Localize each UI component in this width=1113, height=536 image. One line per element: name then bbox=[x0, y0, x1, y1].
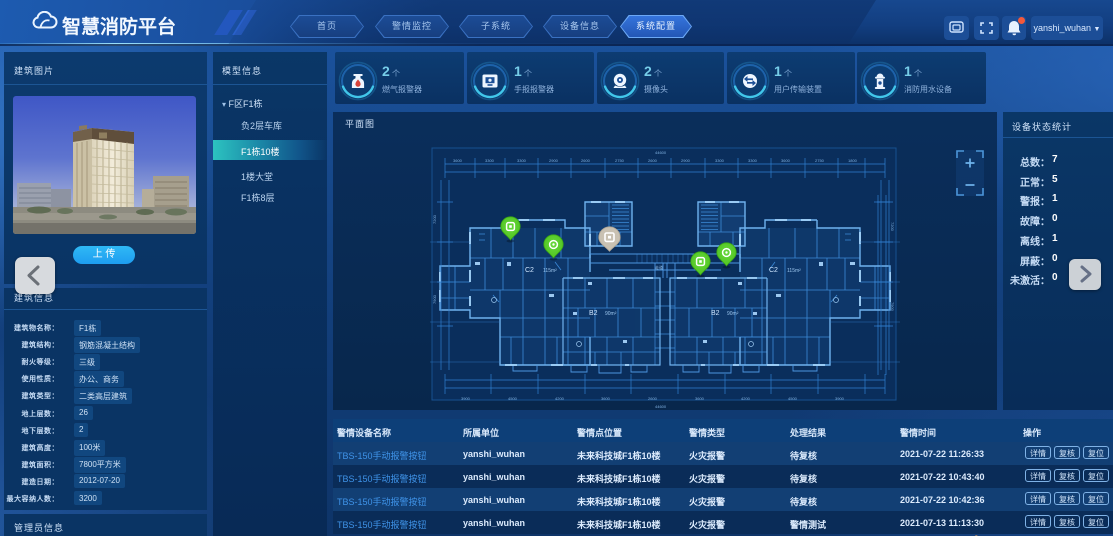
svg-text:3300: 3300 bbox=[485, 158, 495, 163]
svg-text:3600: 3600 bbox=[695, 396, 705, 401]
svg-text:走道: 走道 bbox=[655, 264, 663, 270]
svg-text:4500: 4500 bbox=[788, 396, 798, 401]
svg-text:C2: C2 bbox=[769, 267, 778, 274]
svg-text:3300: 3300 bbox=[748, 158, 758, 163]
svg-text:4200: 4200 bbox=[741, 396, 751, 401]
svg-text:4200: 4200 bbox=[555, 396, 565, 401]
svg-text:B2: B2 bbox=[711, 310, 720, 317]
svg-text:1800: 1800 bbox=[848, 158, 858, 163]
svg-text:2600: 2600 bbox=[648, 396, 658, 401]
svg-text:90m²: 90m² bbox=[727, 311, 739, 317]
svg-text:7900: 7900 bbox=[432, 294, 437, 304]
svg-text:2750: 2750 bbox=[815, 158, 825, 163]
svg-text:2750: 2750 bbox=[615, 158, 625, 163]
svg-text:C2: C2 bbox=[525, 267, 534, 274]
svg-text:3600: 3600 bbox=[453, 158, 463, 163]
svg-text:3900: 3900 bbox=[461, 396, 471, 401]
svg-text:2600: 2600 bbox=[581, 158, 591, 163]
svg-text:2600: 2600 bbox=[648, 158, 658, 163]
svg-text:44600: 44600 bbox=[655, 150, 667, 155]
svg-text:3300: 3300 bbox=[517, 158, 527, 163]
svg-text:4500: 4500 bbox=[508, 396, 518, 401]
svg-text:3600: 3600 bbox=[781, 158, 791, 163]
svg-text:3300: 3300 bbox=[715, 158, 725, 163]
svg-text:2900: 2900 bbox=[681, 158, 691, 163]
svg-text:115m²: 115m² bbox=[787, 268, 801, 274]
svg-text:B2: B2 bbox=[589, 310, 598, 317]
svg-text:44600: 44600 bbox=[655, 404, 667, 409]
svg-text:7900: 7900 bbox=[890, 302, 895, 312]
svg-text:3600: 3600 bbox=[601, 396, 611, 401]
svg-text:7200: 7200 bbox=[890, 222, 895, 232]
svg-text:90m²: 90m² bbox=[605, 311, 617, 317]
svg-text:7200: 7200 bbox=[432, 214, 437, 224]
svg-text:2900: 2900 bbox=[549, 158, 559, 163]
svg-text:115m²: 115m² bbox=[543, 268, 557, 274]
svg-text:3900: 3900 bbox=[835, 396, 845, 401]
